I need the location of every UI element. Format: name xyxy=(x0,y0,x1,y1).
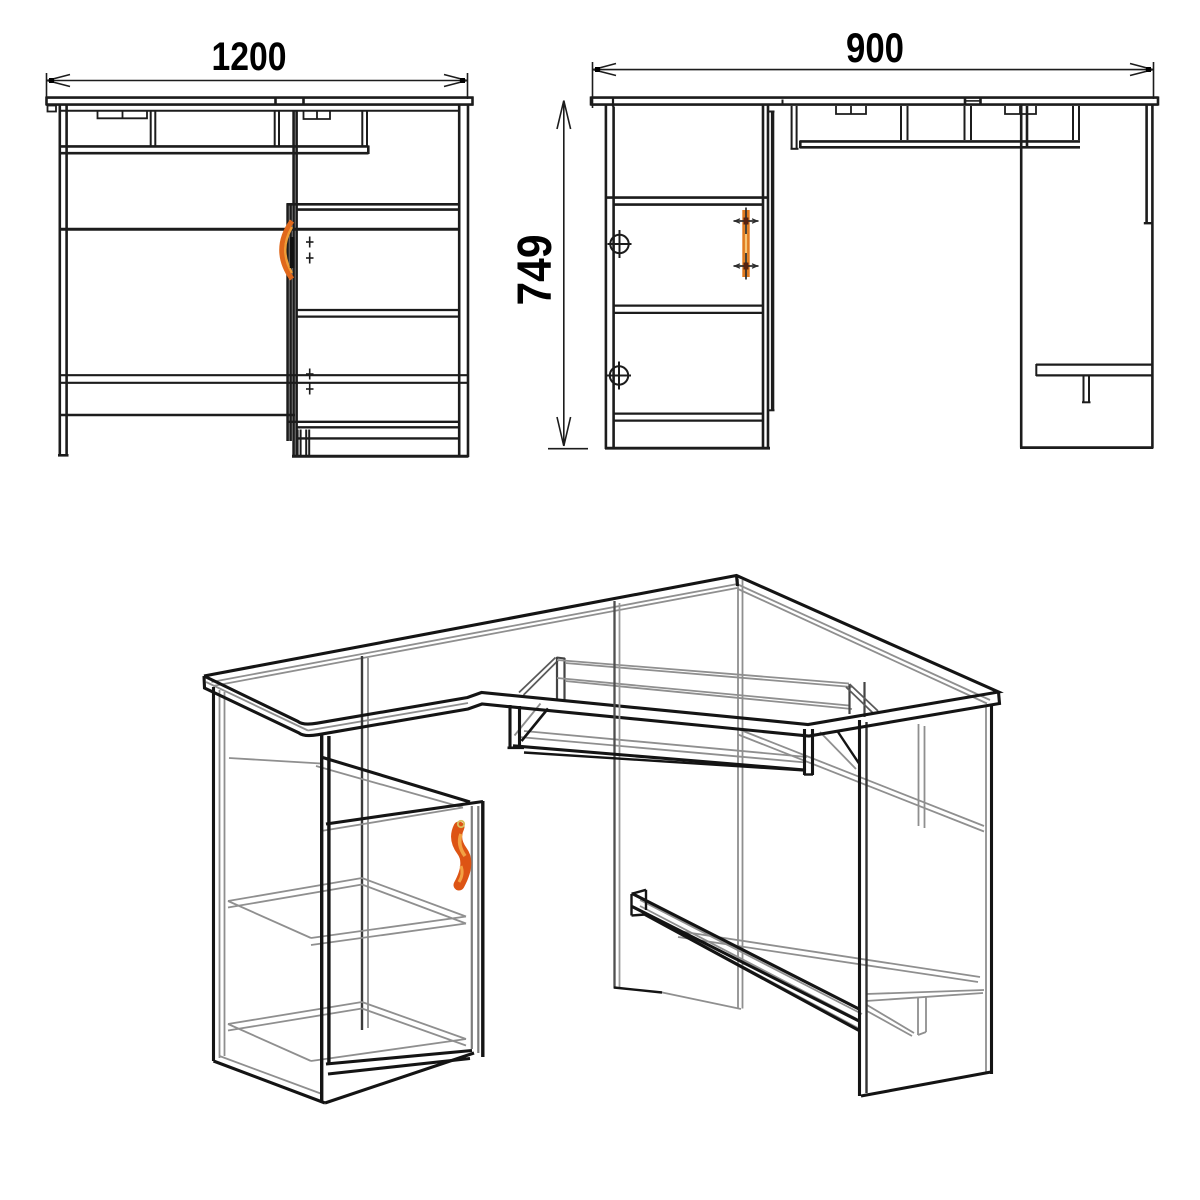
svg-text:1200: 1200 xyxy=(212,35,287,79)
svg-text:900: 900 xyxy=(846,24,904,71)
svg-text:749: 749 xyxy=(509,235,562,306)
